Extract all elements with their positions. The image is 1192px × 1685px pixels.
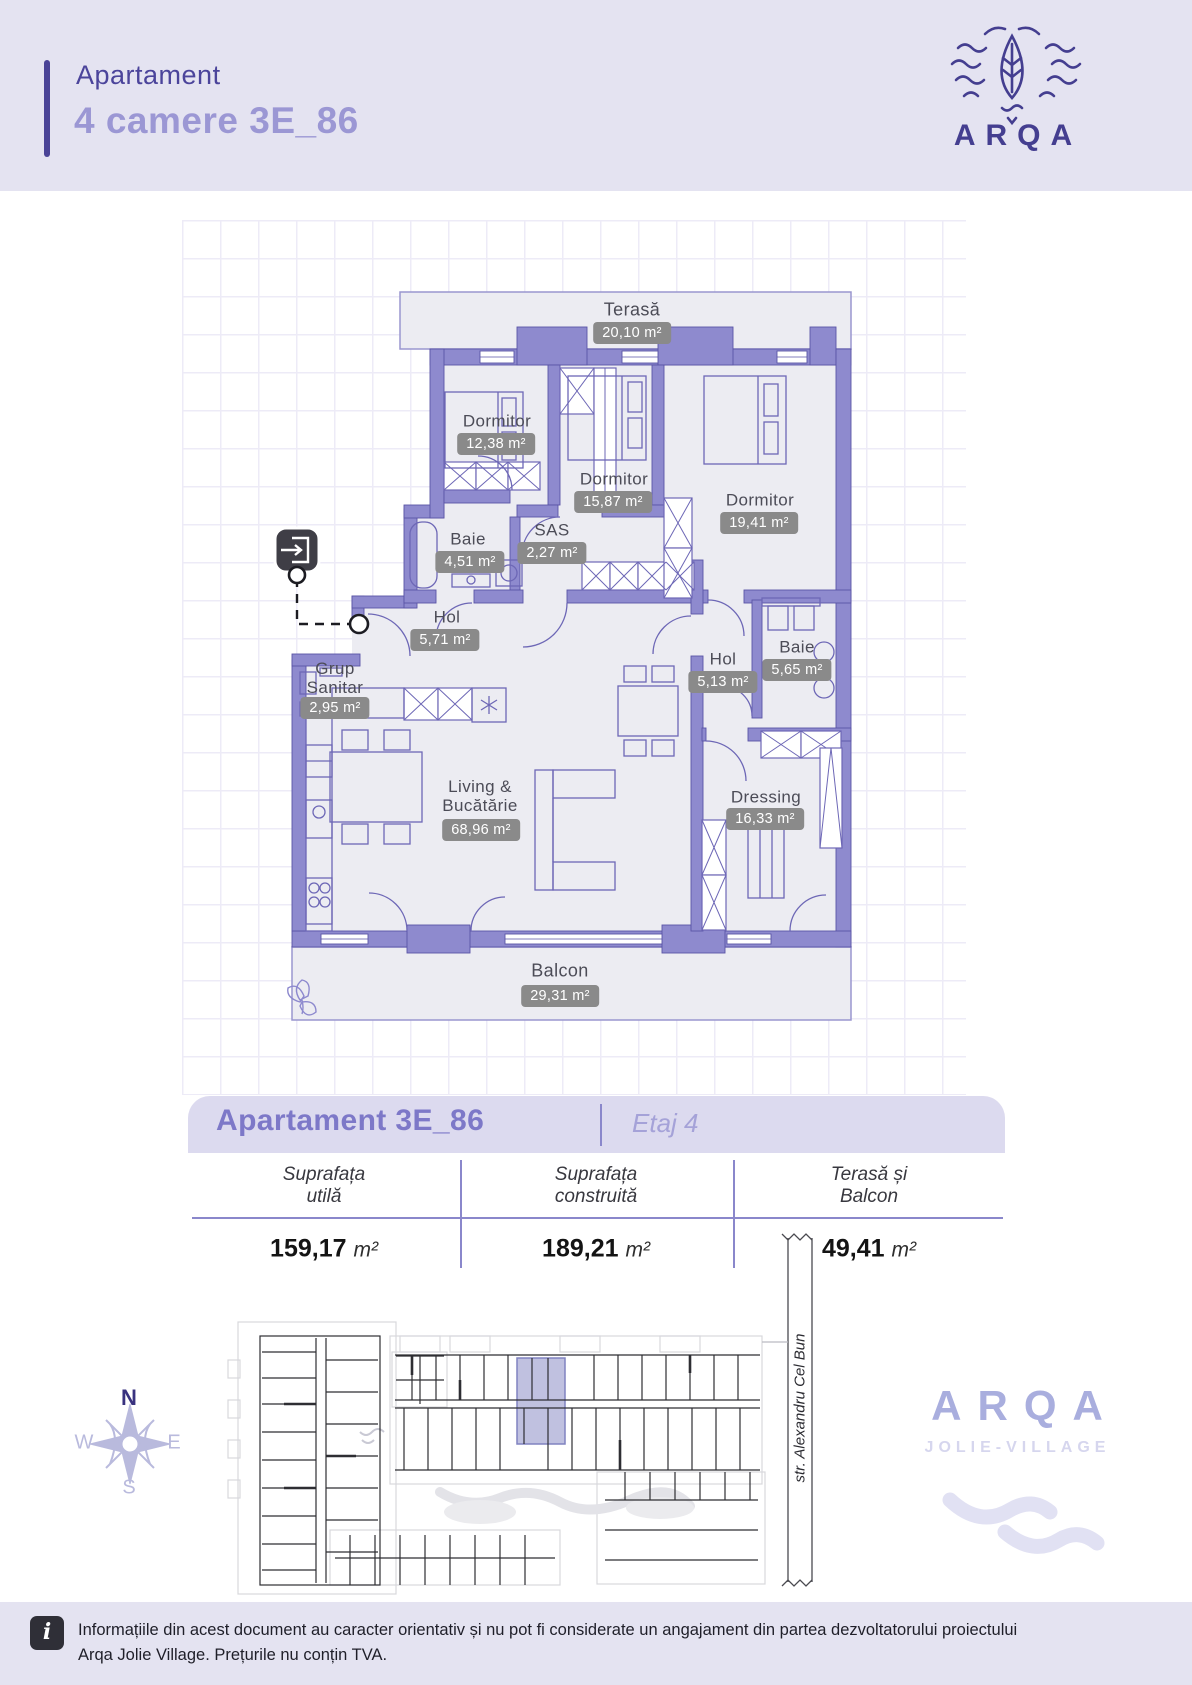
col1-unit: m² (353, 1239, 378, 1262)
room-area-living: 68,96 m² (442, 819, 520, 841)
room-area-hol-1: 5,71 m² (410, 629, 479, 651)
col2-value: 189,21 (542, 1235, 618, 1263)
room-name-baie-2: Baie (779, 638, 815, 657)
col1-value: 159,17 (270, 1235, 346, 1263)
compass-north-label: N (121, 1385, 137, 1411)
room-area-terasa: 20,10 m² (593, 322, 671, 344)
col1-label-line2: utilă (307, 1186, 342, 1207)
room-area-hol-2: 5,13 m² (688, 671, 757, 693)
room-area-grup-sanitar: 2,95 m² (300, 697, 369, 719)
footer-line-1: Informațiile din acest document au carac… (78, 1618, 1158, 1643)
col2-label-line2: construită (555, 1186, 637, 1207)
site-plan-drawing (228, 1234, 812, 1594)
street-name: str. Alexandru Cel Bun (792, 1334, 809, 1483)
col2-unit: m² (625, 1239, 650, 1262)
room-name-hol-2: Hol (710, 650, 737, 669)
room-name-balcon: Balcon (531, 962, 588, 981)
brand-subtitle: JOLIE-VILLAGE (920, 1439, 1111, 1457)
col3-unit: m² (892, 1239, 917, 1262)
brand-name-top: ARQA (944, 119, 1082, 153)
room-name-living: Living & Bucătărie (423, 777, 538, 815)
col3-label-line1: Terasă și (831, 1164, 907, 1185)
room-name-baie-1: Baie (450, 530, 486, 549)
room-area-dormitor-2: 15,87 m² (574, 491, 652, 513)
page-title: 4 camere 3E_86 (74, 100, 359, 142)
room-area-dormitor-1: 12,38 m² (457, 433, 535, 455)
room-name-dormitor-1: Dormitor (463, 412, 531, 431)
compass-south-label: S (122, 1477, 135, 1500)
summary-rule (192, 1217, 1003, 1219)
footer-line-2: Arqa Jolie Village. Prețurile nu conțin … (78, 1643, 1158, 1668)
header-label: Apartament (76, 60, 221, 91)
room-area-dormitor-3: 19,41 m² (720, 512, 798, 534)
brand-name-bottom: ARQA (915, 1382, 1119, 1430)
room-name-terasa: Terasă (604, 301, 660, 320)
room-area-dressing: 16,33 m² (726, 808, 804, 830)
header-band (0, 0, 1192, 191)
room-name-sas: SAS (534, 521, 569, 540)
compass-east-label: E (167, 1432, 180, 1455)
room-area-baie-1: 4,51 m² (435, 551, 504, 573)
col2-label-line1: Suprafața (555, 1164, 637, 1185)
room-name-grup-sanitar: Grup Sanitar (300, 659, 370, 697)
room-area-sas: 2,27 m² (517, 542, 586, 564)
col1-label-line1: Suprafața (283, 1164, 365, 1185)
summary-divider-1 (460, 1160, 462, 1268)
info-icon: i (30, 1616, 64, 1650)
col3-value: 49,41 (822, 1235, 885, 1263)
room-name-dormitor-2: Dormitor (580, 470, 648, 489)
room-area-balcon: 29,31 m² (521, 985, 599, 1007)
highlighted-unit (517, 1358, 565, 1444)
summary-title-separator (600, 1104, 602, 1146)
summary-divider-2 (733, 1160, 735, 1268)
footer-disclaimer: Informațiile din acest document au carac… (78, 1618, 1158, 1668)
room-name-dressing: Dressing (731, 788, 801, 807)
room-name-dormitor-3: Dormitor (726, 491, 794, 510)
compass-west-label: W (75, 1432, 94, 1455)
compass-icon (90, 1404, 170, 1484)
col3-label-line2: Balcon (840, 1186, 898, 1207)
summary-title: Apartament 3E_86 (216, 1104, 484, 1138)
room-area-baie-2: 5,65 m² (762, 659, 831, 681)
summary-floor: Etaj 4 (632, 1108, 699, 1139)
waves-icon (950, 1500, 1097, 1546)
room-name-hol-1: Hol (434, 608, 461, 627)
title-accent-bar (44, 60, 50, 157)
